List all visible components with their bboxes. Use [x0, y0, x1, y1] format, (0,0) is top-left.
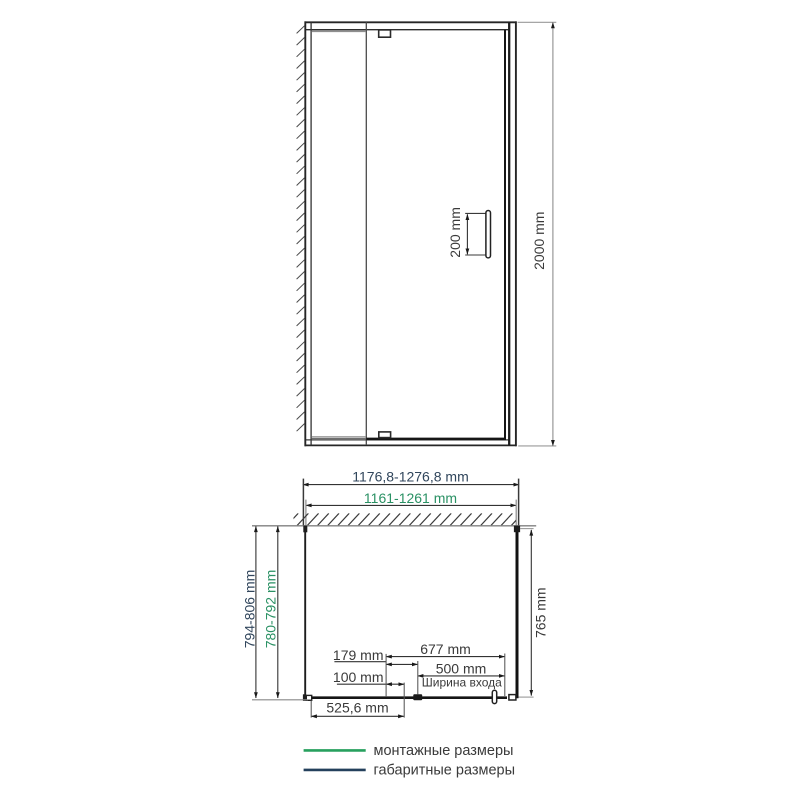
- svg-text:179 mm: 179 mm: [333, 647, 384, 663]
- svg-text:Ширина входа: Ширина входа: [422, 676, 502, 690]
- svg-text:габаритные размеры: габаритные размеры: [374, 762, 516, 778]
- svg-text:монтажные размеры: монтажные размеры: [374, 743, 514, 759]
- svg-text:200 mm: 200 mm: [447, 207, 463, 258]
- svg-text:1176,8-1276,8 mm: 1176,8-1276,8 mm: [352, 469, 468, 485]
- svg-text:677 mm: 677 mm: [420, 641, 471, 657]
- svg-text:525,6 mm: 525,6 mm: [326, 699, 388, 715]
- svg-text:794-806 mm: 794-806 mm: [241, 570, 257, 649]
- svg-text:2000 mm: 2000 mm: [531, 212, 547, 270]
- svg-text:780-792 mm: 780-792 mm: [263, 570, 279, 649]
- svg-text:765 mm: 765 mm: [533, 587, 549, 638]
- svg-text:1161-1261 mm: 1161-1261 mm: [364, 490, 457, 506]
- svg-text:100 mm: 100 mm: [333, 669, 384, 685]
- svg-text:500 mm: 500 mm: [436, 660, 487, 676]
